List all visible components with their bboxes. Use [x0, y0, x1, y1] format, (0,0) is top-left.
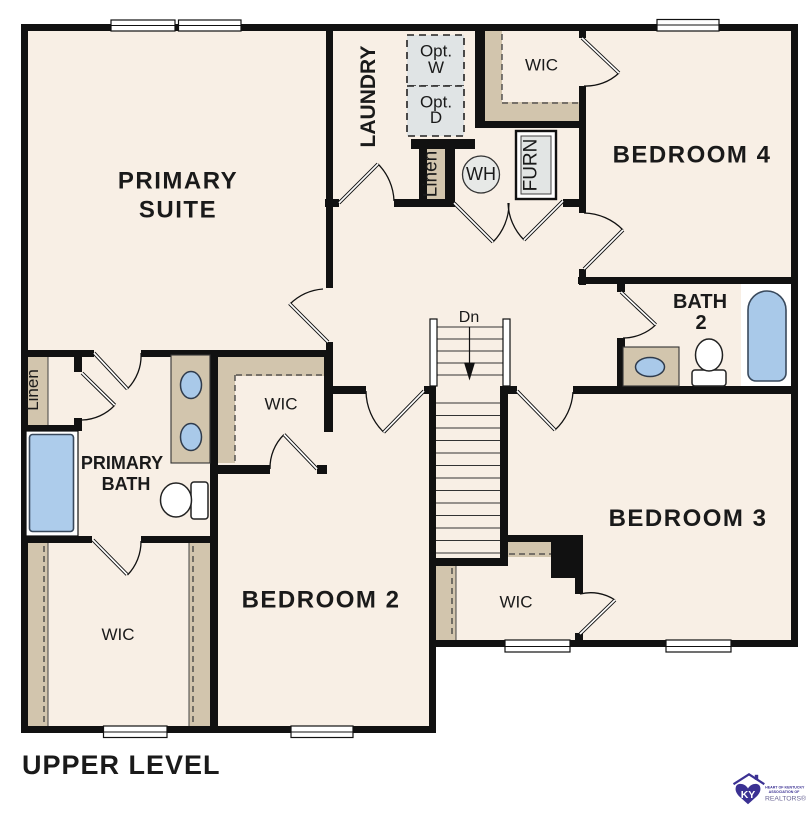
svg-text:W: W: [428, 58, 444, 77]
svg-text:LAUNDRY: LAUNDRY: [357, 46, 380, 148]
svg-text:FURN: FURN: [521, 139, 542, 192]
svg-text:ASSOCIATION OF: ASSOCIATION OF: [769, 790, 800, 794]
svg-text:WIC: WIC: [101, 625, 134, 644]
svg-text:HEART OF KENTUCKY: HEART OF KENTUCKY: [765, 785, 805, 789]
svg-text:BEDROOM 2: BEDROOM 2: [242, 586, 401, 613]
svg-text:PRIMARY: PRIMARY: [118, 168, 238, 195]
svg-text:WIC: WIC: [499, 593, 532, 612]
svg-text:BATH: BATH: [102, 474, 151, 494]
svg-text:UPPER LEVEL: UPPER LEVEL: [22, 750, 221, 780]
svg-text:WH: WH: [466, 164, 496, 184]
svg-text:BEDROOM 3: BEDROOM 3: [609, 505, 768, 532]
svg-text:Linen: Linen: [421, 151, 442, 198]
svg-text:WIC: WIC: [264, 395, 297, 414]
svg-text:BEDROOM 4: BEDROOM 4: [613, 142, 772, 169]
svg-text:BATH: BATH: [673, 291, 727, 313]
svg-text:Linen: Linen: [23, 369, 42, 411]
svg-text:KY: KY: [741, 789, 756, 801]
svg-text:Dn: Dn: [459, 309, 479, 326]
svg-text:2: 2: [695, 312, 706, 334]
svg-text:D: D: [430, 108, 442, 127]
svg-text:WIC: WIC: [525, 56, 558, 75]
svg-text:REALTORS®: REALTORS®: [765, 794, 806, 802]
svg-text:SUITE: SUITE: [139, 197, 217, 224]
svg-text:PRIMARY: PRIMARY: [81, 453, 163, 473]
